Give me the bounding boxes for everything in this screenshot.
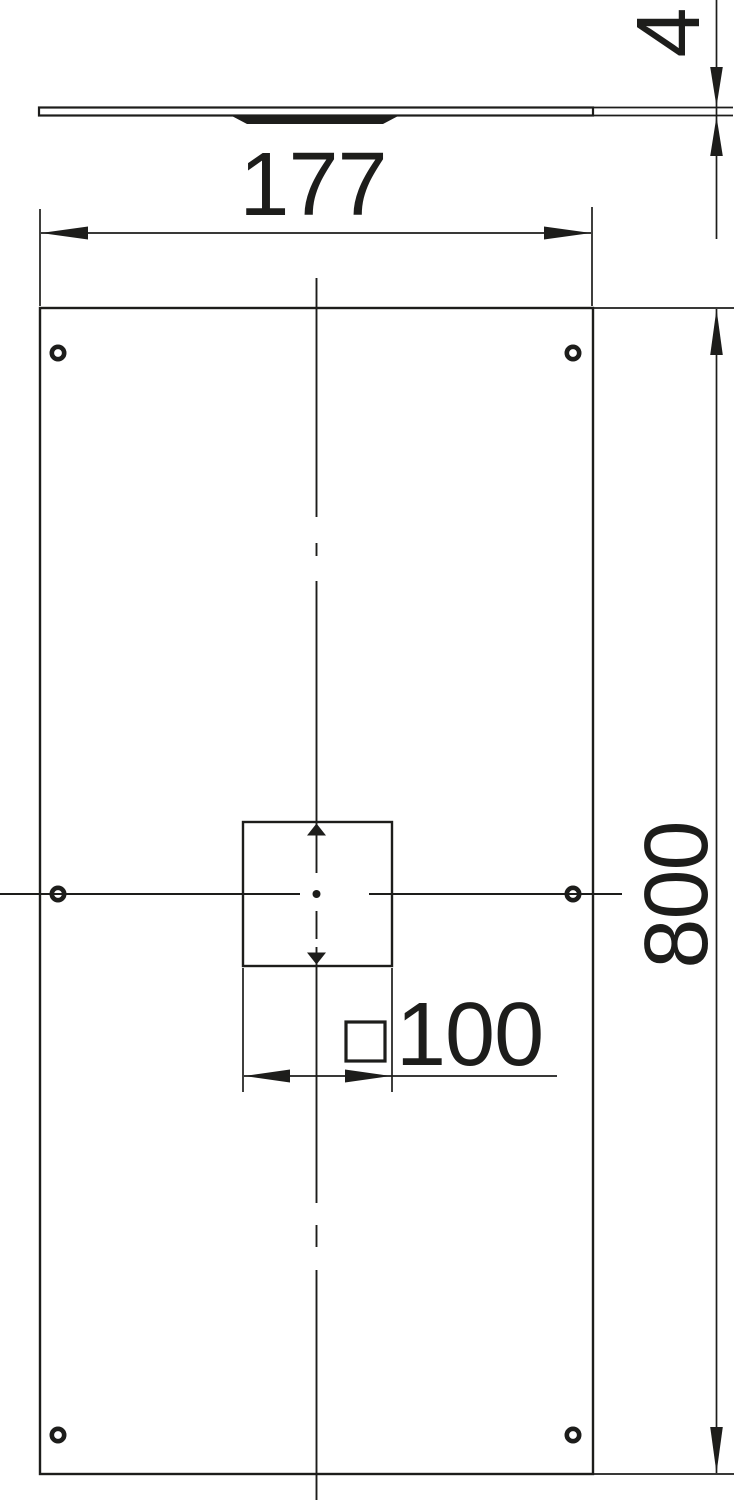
arrowhead-right-icon bbox=[345, 1070, 391, 1083]
square-symbol-icon bbox=[346, 1022, 385, 1061]
center-point-dot bbox=[313, 890, 321, 898]
arrowhead-left-icon bbox=[244, 1070, 290, 1083]
arrowhead-up-icon bbox=[710, 309, 723, 355]
arrowhead-up-icon bbox=[307, 824, 326, 836]
technical-drawing: 4 177 bbox=[0, 0, 736, 1500]
height-dimension: 800 bbox=[593, 308, 734, 1474]
thickness-dimension: 4 bbox=[593, 0, 733, 239]
drawing-canvas: 4 177 bbox=[0, 0, 736, 1500]
hole-bottom-right bbox=[567, 1429, 579, 1441]
thickness-dimension-label: 4 bbox=[619, 8, 719, 57]
arrowhead-down-icon bbox=[307, 953, 326, 965]
hole-top-right bbox=[567, 347, 579, 359]
height-dimension-label: 800 bbox=[627, 821, 727, 968]
hole-top-left bbox=[52, 347, 64, 359]
cutout-dimension: 100 bbox=[243, 968, 557, 1092]
arrowhead-down-icon bbox=[710, 67, 723, 107]
arrowhead-left-icon bbox=[41, 227, 88, 240]
side-view-plate bbox=[39, 108, 593, 116]
side-view-flange-bump bbox=[229, 115, 401, 125]
width-dimension-label: 177 bbox=[239, 135, 386, 235]
front-view bbox=[0, 278, 622, 1500]
hole-bottom-left bbox=[52, 1429, 64, 1441]
cutout-dimension-label: 100 bbox=[396, 985, 543, 1085]
arrowhead-right-icon bbox=[544, 227, 591, 240]
side-view bbox=[39, 108, 593, 125]
arrowhead-up-icon bbox=[710, 117, 723, 157]
arrowhead-down-icon bbox=[710, 1427, 723, 1473]
